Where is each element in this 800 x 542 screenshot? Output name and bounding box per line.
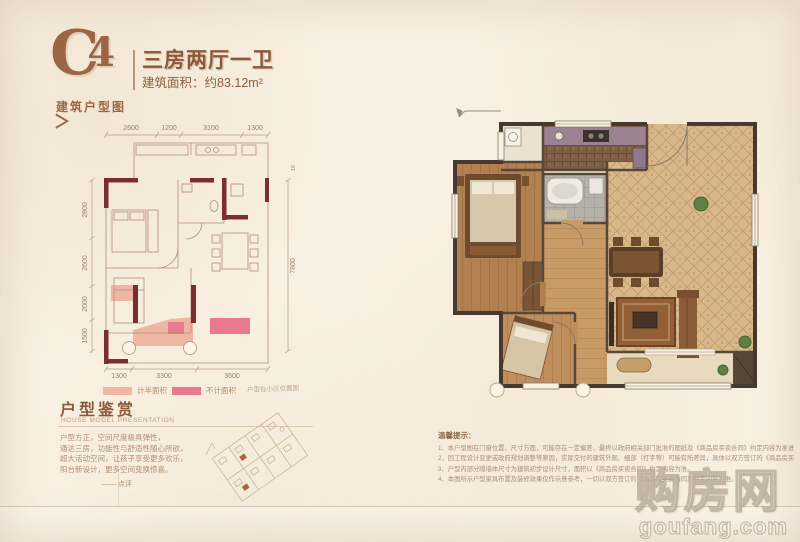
appreciation-line: 通达三房，功能性与舒适性随心所欲， (60, 444, 200, 455)
appreciation-signature: —— 点评 (102, 479, 132, 489)
floorplan-brochure-page: C4 三房两厅一卫 建筑面积：约83.12m² 建筑户型图 ＞ 2600 120… (0, 0, 800, 542)
legend-swatch-half-area (103, 387, 132, 395)
unit-code-number: 4 (87, 29, 115, 76)
unit-area: 建筑面积：约83.12m² (142, 72, 263, 91)
watermark-domain: goufang.com (639, 516, 788, 538)
svg-text:1500: 1500 (82, 328, 89, 344)
svg-text:1300: 1300 (111, 373, 127, 380)
sketch-arrow-icon (206, 443, 215, 455)
svg-text:7800: 7800 (290, 258, 297, 274)
rendered-floorplan (435, 98, 770, 420)
appreciation-line: 超大活动空间，让孩子享受更多欢乐， (60, 454, 200, 465)
svg-text:3300: 3300 (156, 373, 172, 380)
legend-label-half-area: 计半面积 (137, 385, 167, 396)
site-location-sketch (198, 403, 333, 515)
svg-text:2800: 2800 (82, 202, 89, 218)
legend-label-excluded-area: 不计面积 (206, 385, 236, 396)
area-fills (111, 285, 250, 346)
svg-text:2000: 2000 (82, 296, 89, 312)
appreciation-paragraph: 户型方正，空间尺度极具弹性， 通达三房，功能性与舒适性随心所欲， 超大活动空间，… (60, 433, 200, 475)
svg-text:1200: 1200 (161, 125, 177, 132)
appreciation-subtitle: HOUSE MODEL PRESENTATION (61, 417, 175, 424)
appreciation-line: 户型方正，空间尺度极具弹性， (60, 433, 200, 444)
svg-text:1300: 1300 (247, 125, 263, 132)
svg-text:3100: 3100 (203, 125, 219, 132)
north-arrow-icon (456, 108, 501, 117)
appreciation-line: 阳台新设计，更多空间变换惊喜。 (60, 465, 200, 476)
unit-code: C4 (50, 22, 115, 84)
location-map-caption: 户型在小区位置图 (247, 382, 299, 394)
tips-item: 2、因工程设计变更或政府规划调整等原因，实际交付的建筑外观、细部（打字等）可能有… (438, 454, 794, 464)
legend-swatch-excluded-area (172, 387, 201, 395)
svg-text:3600: 3600 (224, 373, 240, 380)
svg-text:2600: 2600 (82, 255, 89, 271)
tips-title: 温馨提示： (438, 430, 794, 441)
technical-floorplan: 2600 1200 3100 1300 2800 2600 2000 1500 … (76, 118, 321, 390)
tips-item: 1、本户型图在门窗位置、尺寸方面，可能存在一定偏差，最终以政府相关部门批准的图纸… (438, 444, 794, 454)
chevron-right-icon: ＞ (54, 106, 70, 134)
page-crease (118, 455, 119, 507)
watermark-brand: 购房网 (635, 468, 788, 514)
watermark: 购房网 goufang.com (635, 468, 788, 538)
svg-text:16: 16 (291, 165, 297, 171)
title-divider (133, 50, 135, 90)
unit-title: 三房两厅一卫 (142, 44, 274, 74)
svg-text:2600: 2600 (123, 125, 139, 132)
